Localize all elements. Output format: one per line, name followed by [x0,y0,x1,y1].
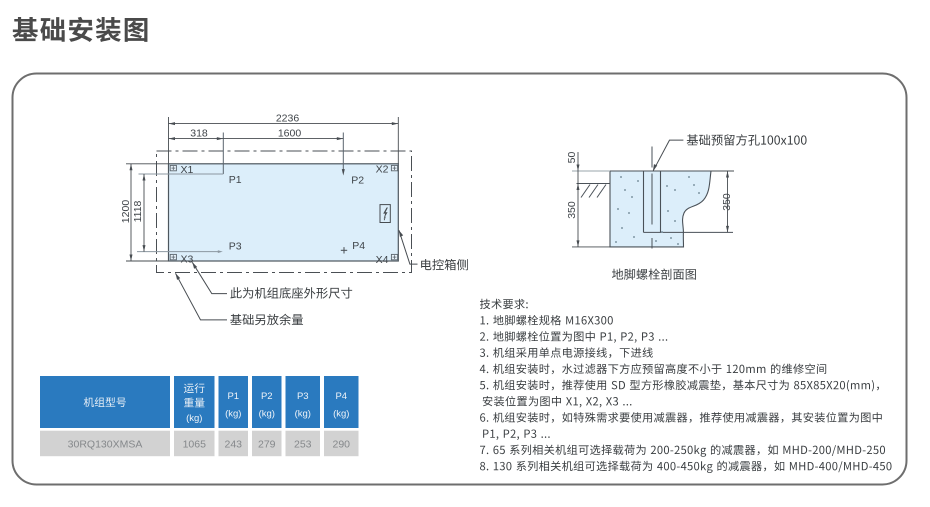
svg-text:P1: P1 [227,391,239,402]
svg-text:2236: 2236 [276,113,300,125]
svg-text:X3: X3 [181,254,194,266]
svg-text:(kg): (kg) [295,409,311,420]
svg-text:290: 290 [332,438,350,450]
svg-text:(kg): (kg) [225,409,241,420]
svg-text:(kg): (kg) [259,409,275,420]
svg-text:1200: 1200 [120,200,132,224]
svg-text:50: 50 [566,152,578,164]
svg-text:X4: X4 [376,254,389,266]
svg-text:P4: P4 [335,391,347,402]
svg-text:(kg): (kg) [186,413,202,424]
svg-text:253: 253 [294,438,312,450]
svg-text:1118: 1118 [132,200,144,222]
svg-text:P4: P4 [352,240,365,252]
svg-text:(kg): (kg) [333,409,349,420]
svg-text:350: 350 [566,201,578,219]
svg-text:P3: P3 [297,391,309,402]
svg-text:350: 350 [721,193,733,211]
svg-text:1600: 1600 [278,128,302,140]
svg-text:30RQ130XMSA: 30RQ130XMSA [68,438,143,450]
svg-text:1065: 1065 [183,438,207,450]
svg-text:X2: X2 [376,164,389,176]
svg-text:P2: P2 [261,391,273,402]
svg-text:279: 279 [258,438,276,450]
svg-text:P1: P1 [229,174,242,186]
svg-text:243: 243 [224,438,242,450]
svg-text:P3: P3 [229,241,242,253]
svg-text:P2: P2 [351,174,364,186]
svg-text:318: 318 [190,128,208,140]
